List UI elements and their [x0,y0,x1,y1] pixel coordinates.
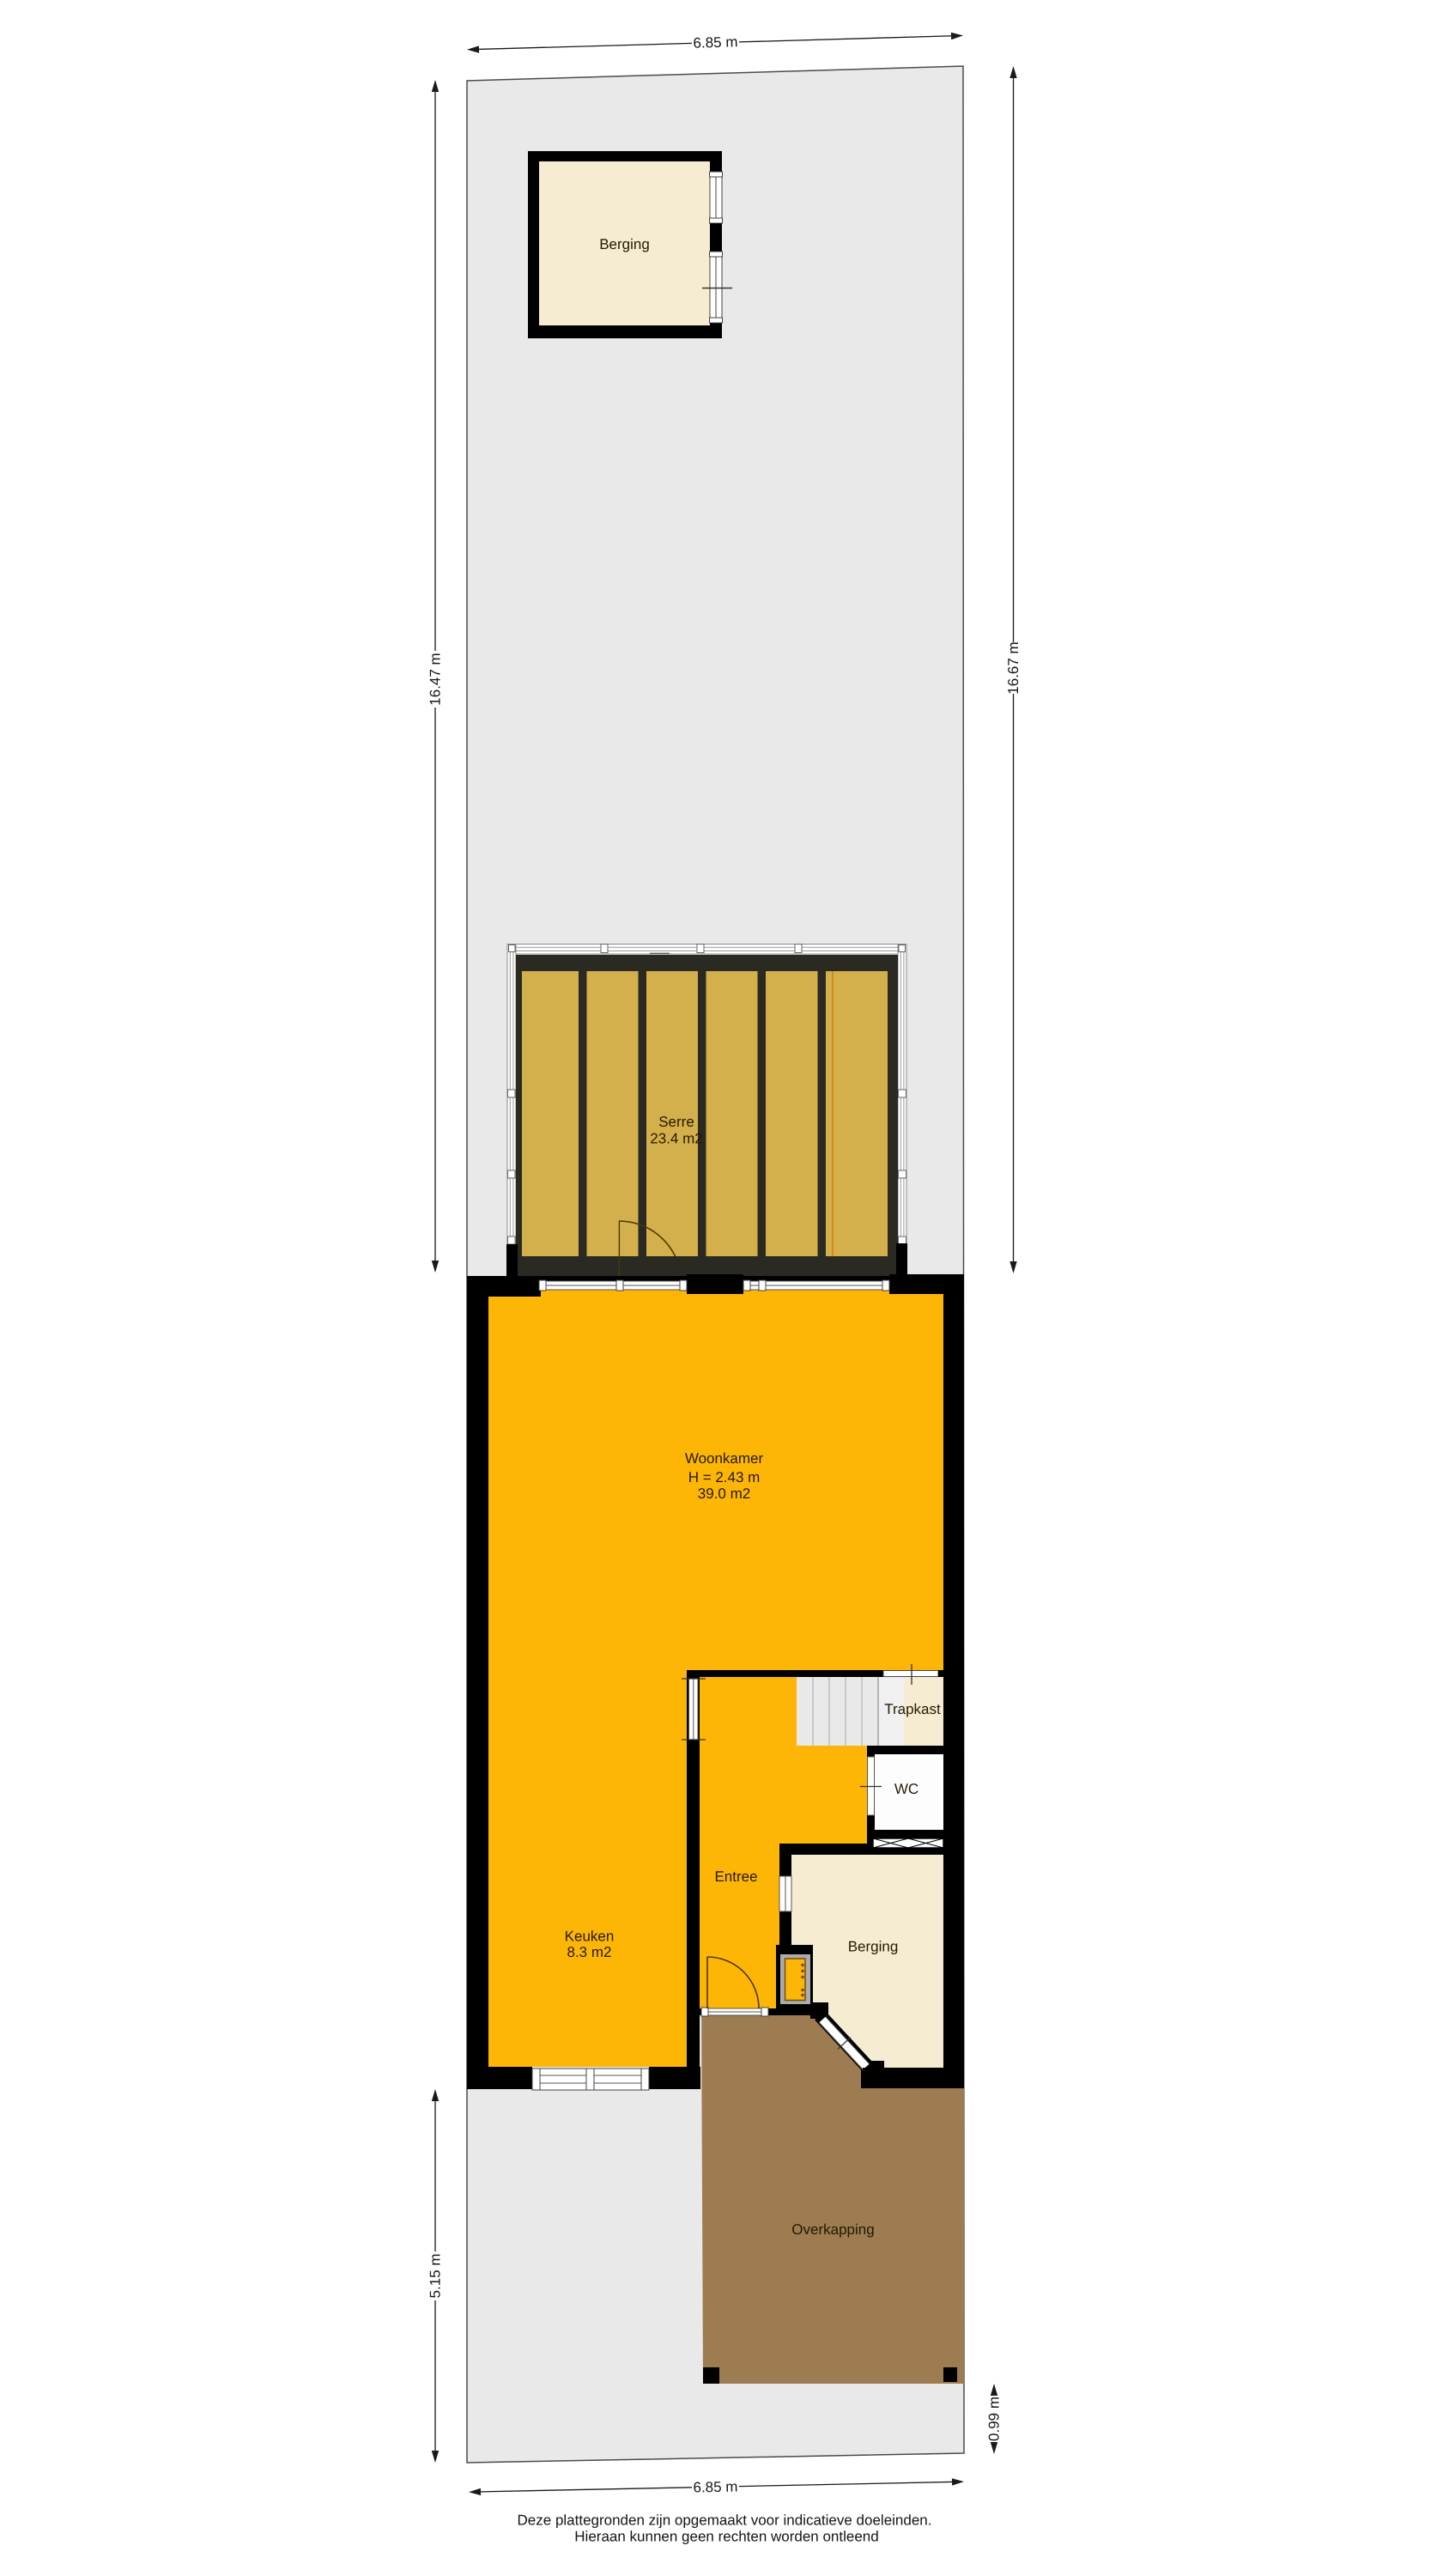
svg-text:Trapkast: Trapkast [884,1701,941,1717]
svg-text:Overkapping: Overkapping [791,2221,874,2238]
svg-text:Keuken: Keuken [565,1929,615,1945]
svg-text:6.85 m: 6.85 m [693,33,738,52]
svg-text:8.3 m2: 8.3 m2 [567,1944,612,1960]
svg-text:Entree: Entree [714,1868,757,1885]
svg-text:6.85 m: 6.85 m [693,2478,737,2495]
svg-text:Berging: Berging [599,236,650,252]
svg-text:Woonkamer: Woonkamer [685,1450,764,1467]
svg-text:Berging: Berging [848,1939,899,1955]
svg-text:16.67 m: 16.67 m [1005,641,1022,694]
svg-text:16.47 m: 16.47 m [427,653,444,705]
svg-text:Deze plattegronden zijn opgema: Deze plattegronden zijn opgemaakt voor i… [518,2512,932,2529]
svg-text:5.15 m: 5.15 m [427,2254,444,2299]
svg-text:H = 2.43 m: H = 2.43 m [688,1469,761,1485]
svg-text:0.99 m: 0.99 m [986,2397,1003,2441]
svg-text:Serre: Serre [658,1114,694,1130]
svg-text:39.0 m2: 39.0 m2 [698,1485,750,1502]
svg-text:WC: WC [894,1781,919,1797]
svg-text:Hieraan kunnen geen rechten wo: Hieraan kunnen geen rechten worden ontle… [574,2529,878,2545]
svg-text:23.4 m2: 23.4 m2 [650,1131,702,1147]
